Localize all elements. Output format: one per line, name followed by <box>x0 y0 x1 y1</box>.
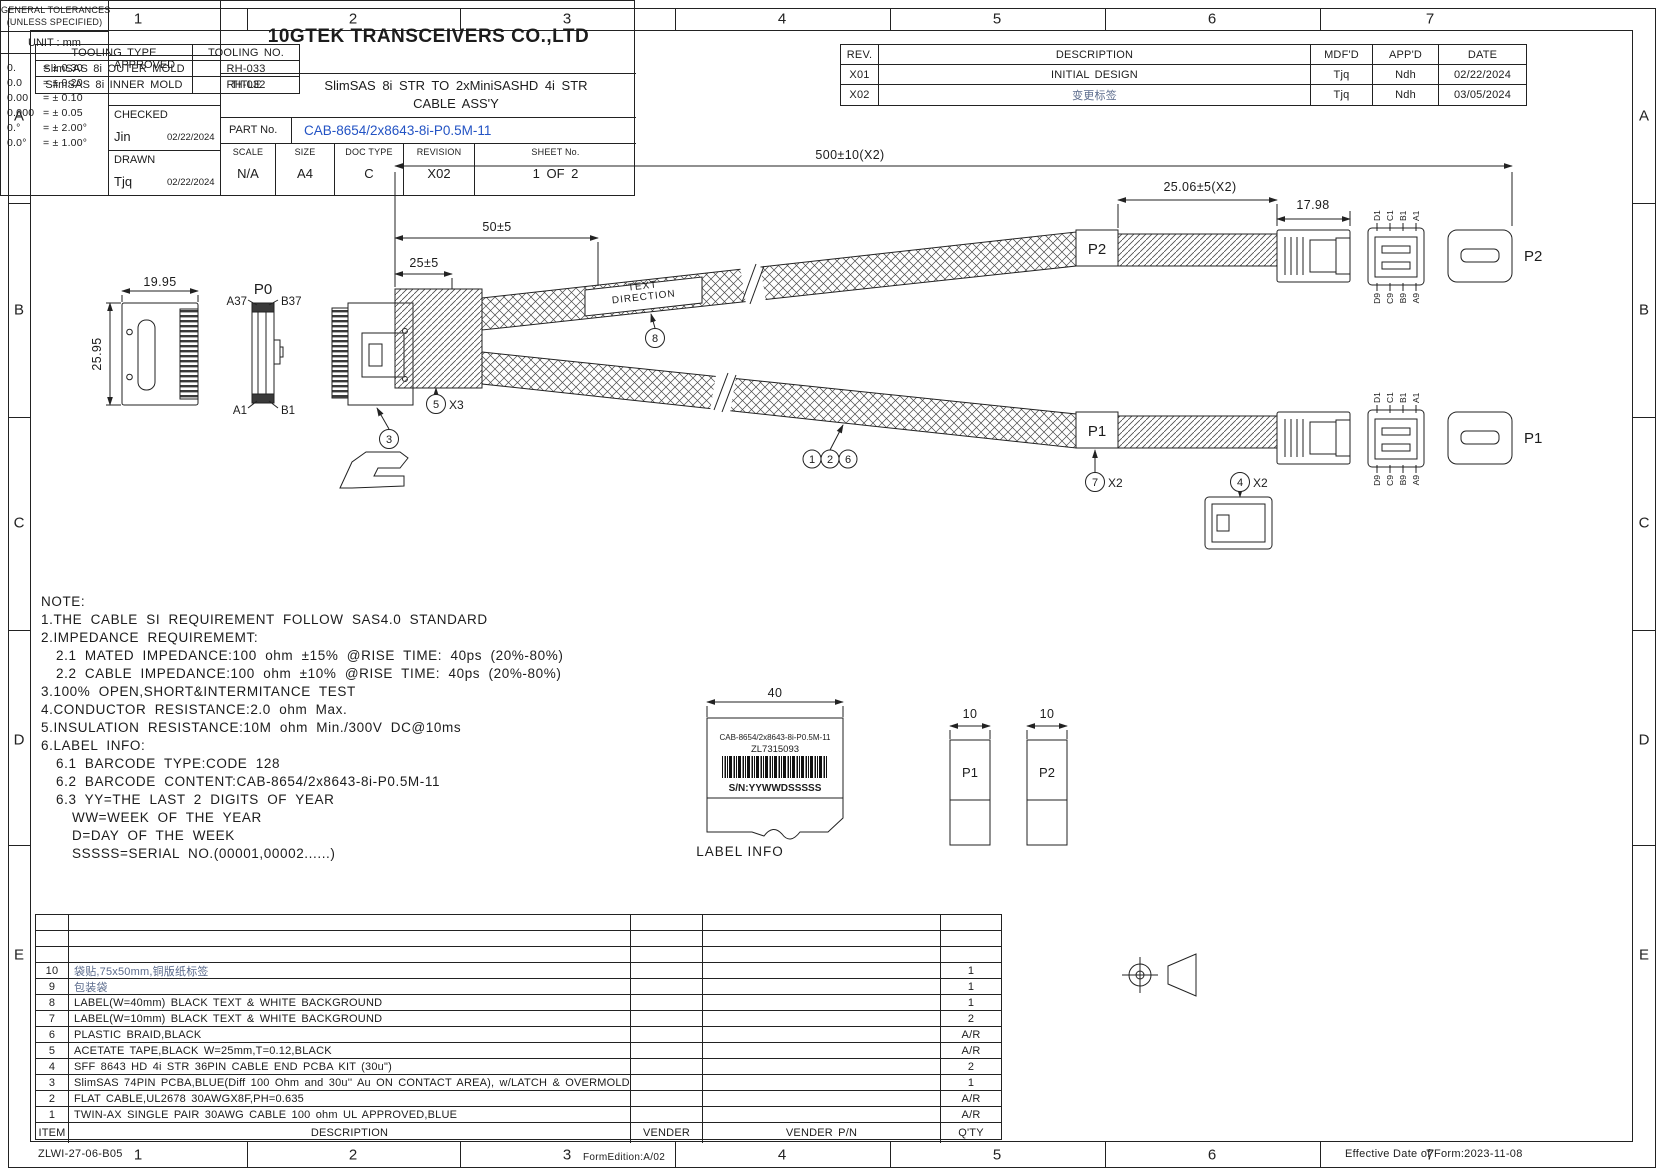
bom-item: 4 <box>36 1059 69 1075</box>
note-line: 6.1 BARCODE TYPE:CODE 128 <box>41 755 563 773</box>
bom-qty: 1 <box>941 963 1001 979</box>
note-line: D=DAY OF THE WEEK <box>41 827 563 845</box>
bom-cell-empty <box>631 947 703 963</box>
pin-label-c9: C9 <box>1385 475 1395 486</box>
notes-block: NOTE: 1.THE CABLE SI REQUIREMENT FOLLOW … <box>41 593 563 863</box>
form-number: ZLWI-27-06-B05 <box>38 1148 123 1160</box>
minisas-p2-front-view <box>1368 223 1424 291</box>
bom-vender <box>631 995 703 1011</box>
svg-text:5: 5 <box>433 399 439 411</box>
dim-50-text: 50±5 <box>482 220 511 234</box>
dim-25 <box>395 274 452 289</box>
bom-cell-empty <box>69 931 631 947</box>
p2-connector-label: P2 <box>1524 248 1542 265</box>
bom-cell-empty <box>36 915 69 931</box>
p0-label: P0 <box>254 281 272 298</box>
form-edition: FormEdition:A/02 <box>583 1152 665 1163</box>
company-name: 10GTEK TRANSCEIVERS CO.,LTD <box>268 26 589 48</box>
tolerance-row: 0.000= ± 0.05 <box>1 104 108 119</box>
note-line: 3.100% OPEN,SHORT&INTERMITANCE TEST <box>41 683 563 701</box>
dim-connector-length <box>1277 211 1350 226</box>
small-label-p2-text: P2 <box>1039 765 1055 780</box>
bom-description: LABEL(W=40mm) BLACK TEXT & WHITE BACKGRO… <box>69 995 631 1011</box>
bom-item: 5 <box>36 1043 69 1059</box>
bom-vender-pn <box>703 1011 941 1027</box>
balloon-8: 8 <box>646 314 665 348</box>
bom-description: ACETATE TAPE,BLACK W=25mm,T=0.12,BLACK <box>69 1043 631 1059</box>
sheet-value: 1 OF 2 <box>475 166 636 181</box>
pin-label-d1: D1 <box>1372 210 1382 221</box>
cable-label-p2: P2 <box>1088 241 1106 258</box>
label-partno-text: CAB-8654/2x8643-8i-P0.5M-11 <box>719 733 831 742</box>
svg-text:7: 7 <box>1092 477 1098 489</box>
pin-label-a1: A1 <box>1411 210 1421 221</box>
balloon-5-mult: X3 <box>449 398 464 412</box>
projection-symbol <box>1122 954 1196 996</box>
svg-text:3: 3 <box>386 434 392 446</box>
note-line: 6.3 YY=THE LAST 2 DIGITS OF YEAR <box>41 791 563 809</box>
general-tolerances-box: GENERAL TOLERANCES (UNLESS SPECIFIED) UN… <box>1 1 109 195</box>
label-info-caption: LABEL INFO <box>696 844 784 859</box>
tolerance-row: 0.00= ± 0.10 <box>1 89 108 104</box>
bom-header-description: DESCRIPTION <box>69 1123 631 1143</box>
part-no-value: CAB-8654/2x8643-8i-P0.5M-11 <box>292 123 491 138</box>
bom-header-vender: VENDER <box>631 1123 703 1143</box>
bom-item: 2 <box>36 1091 69 1107</box>
dim-height-text: 25.95 <box>90 337 104 370</box>
braid-lower-band <box>482 352 1076 448</box>
bom-cell-empty <box>941 931 1001 947</box>
slimsas-front-view <box>122 303 198 405</box>
bom-vender-pn <box>703 979 941 995</box>
svg-text:8: 8 <box>652 333 658 345</box>
form-effective-date: Effective Date of Form:2023-11-08 <box>1345 1148 1523 1160</box>
cable-label-p1: P1 <box>1088 423 1106 440</box>
drawing-title-line2: CABLE ASS'Y <box>281 96 631 111</box>
bom-qty: A/R <box>941 1091 1001 1107</box>
scale-value: N/A <box>221 166 275 181</box>
bom-header-qty: Q'TY <box>941 1123 1001 1143</box>
balloon-4: 4 X2 <box>1231 473 1269 498</box>
bom-description: SlimSAS 74PIN PCBA,BLUE(Diff 100 Ohm and… <box>69 1075 631 1091</box>
pin-label-d9: D9 <box>1372 475 1382 486</box>
tolerances-unit: UNIT : mm <box>1 37 108 49</box>
tolerance-row: 0.°= ± 2.00° <box>1 119 108 134</box>
pin-a37-label: A37 <box>227 296 247 308</box>
title-label: TITLE <box>231 79 261 91</box>
bom-cell-empty <box>703 931 941 947</box>
pin-label-b1: B1 <box>1398 392 1408 403</box>
bom-qty: 1 <box>941 1075 1001 1091</box>
note-line: SSSSS=SERIAL NO.(00001,00002......) <box>41 845 563 863</box>
bom-vender-pn <box>703 963 941 979</box>
note-line: 2.1 MATED IMPEDANCE:100 ohm ±15% @RISE T… <box>41 647 563 665</box>
bom-description: FLAT CABLE,UL2678 30AWGX8F,PH=0.635 <box>69 1091 631 1107</box>
svg-text:1: 1 <box>809 454 815 466</box>
bom-vender-pn <box>703 1027 941 1043</box>
bom-header-item: ITEM <box>36 1123 69 1143</box>
pin-label-b9: B9 <box>1398 293 1408 304</box>
balloon-3: 3 <box>377 408 399 449</box>
drawn-label: DRAWN <box>114 154 155 166</box>
small-label-p1-text: P1 <box>962 765 978 780</box>
bom-cell-empty <box>69 915 631 931</box>
tolerances-title: GENERAL TOLERANCES <box>1 5 108 15</box>
slimsas-p0-side-view <box>248 300 283 408</box>
bom-cell-empty <box>69 947 631 963</box>
tolerance-row: 0.0°= ± 1.00° <box>1 134 108 149</box>
svg-text:4: 4 <box>1237 477 1243 489</box>
bom-vender <box>631 1107 703 1123</box>
bom-vender-pn <box>703 1107 941 1123</box>
doc-type-value: C <box>335 166 403 181</box>
braid-upper-band <box>482 232 1076 330</box>
bom-vender <box>631 979 703 995</box>
minisas-p1-end-view <box>1448 412 1512 464</box>
bom-item: 8 <box>36 995 69 1011</box>
bom-cell-empty <box>36 947 69 963</box>
approvals-column: APPROVED CHECKED Jin 02/22/2024 DRAWN Tj… <box>109 1 221 195</box>
small-label-p1-dim: 10 <box>963 707 978 721</box>
pin-label-a1: A1 <box>1411 392 1421 403</box>
bom-cell-empty <box>703 947 941 963</box>
pin-label-c1: C1 <box>1385 392 1395 403</box>
revision-value: X02 <box>404 166 474 181</box>
bom-item: 7 <box>36 1011 69 1027</box>
tolerances-subtitle: (UNLESS SPECIFIED) <box>1 17 108 27</box>
dim-connector-height <box>106 303 121 405</box>
pin-b37-label: B37 <box>281 296 301 308</box>
dim-connector-width <box>122 291 198 302</box>
minisas-p1-side-view <box>1277 412 1350 464</box>
pin-a1-label: A1 <box>233 405 247 417</box>
bom-vender <box>631 1027 703 1043</box>
label-width-dim: 40 <box>768 686 783 700</box>
bom-qty: 2 <box>941 1059 1001 1075</box>
title-column: 10GTEK TRANSCEIVERS CO.,LTD TITLE SlimSA… <box>221 1 634 195</box>
bom-qty: A/R <box>941 1107 1001 1123</box>
balloon-4-mult: X2 <box>1253 476 1268 490</box>
svg-text:2: 2 <box>827 454 833 466</box>
minisas-p1-front-view <box>1368 405 1424 473</box>
note-line: 1.THE CABLE SI REQUIREMENT FOLLOW SAS4.0… <box>41 611 563 629</box>
bom-vender-pn <box>703 1091 941 1107</box>
bom-cell-empty <box>631 915 703 931</box>
dim-tape-text: 25.06±5(X2) <box>1163 180 1236 194</box>
bom-qty: 1 <box>941 979 1001 995</box>
bom-vender <box>631 1075 703 1091</box>
checked-by: Jin <box>114 129 131 144</box>
pin-label-d1: D1 <box>1372 392 1382 403</box>
note-line: NOTE: <box>41 593 563 611</box>
bom-vender-pn <box>703 1043 941 1059</box>
bom-description: 袋贴,75x50mm,铜版纸标签 <box>69 963 631 979</box>
tape-section-p2 <box>1118 234 1277 266</box>
sff8643-bottom-view <box>1205 497 1272 549</box>
bom-item: 1 <box>36 1107 69 1123</box>
drawn-date: 02/22/2024 <box>167 177 215 188</box>
bom-description: 包装袋 <box>69 979 631 995</box>
title-block: GENERAL TOLERANCES (UNLESS SPECIFIED) UN… <box>0 0 635 196</box>
pin-label-c9: C9 <box>1385 293 1395 304</box>
drawn-by: Tjq <box>114 174 132 189</box>
label-info-drawing <box>707 702 843 839</box>
pin-label-a9: A9 <box>1411 475 1421 486</box>
latch-detail <box>340 452 408 488</box>
dim-overall-text: 500±10(X2) <box>815 148 884 162</box>
balloon-7-mult: X2 <box>1108 476 1123 490</box>
bom-vender <box>631 963 703 979</box>
doc-type-label: DOC TYPE <box>335 147 403 157</box>
bom-cell-empty <box>703 915 941 931</box>
bom-vender <box>631 1059 703 1075</box>
overmold-hatch-block <box>395 289 482 388</box>
bom-item: 9 <box>36 979 69 995</box>
bom-vender <box>631 1011 703 1027</box>
bom-vender <box>631 1091 703 1107</box>
small-label-p2 <box>1027 726 1067 845</box>
balloon-7: 7 X2 <box>1086 450 1124 492</box>
balloon-group-1-2-6: 1 2 6 <box>803 425 857 468</box>
revision-label: REVISION <box>404 147 474 157</box>
bom-description: PLASTIC BRAID,BLACK <box>69 1027 631 1043</box>
tolerance-row: 0.0= ± 0.20 <box>1 74 108 89</box>
checked-label: CHECKED <box>114 109 168 121</box>
approved-label: APPROVED <box>114 59 175 71</box>
bom-item: 3 <box>36 1075 69 1091</box>
bom-table: 10 袋贴,75x50mm,铜版纸标签 1 9 包装袋 1 8 LABEL(W=… <box>35 914 1002 1140</box>
bom-vender-pn <box>703 1059 941 1075</box>
note-line: 5.INSULATION RESISTANCE:10M ohm Min./300… <box>41 719 563 737</box>
bom-description: SFF 8643 HD 4i STR 36PIN CABLE END PCBA … <box>69 1059 631 1075</box>
bom-cell-empty <box>941 947 1001 963</box>
tape-section-p1 <box>1118 416 1277 448</box>
tolerance-row: 0.= ± 0.30 <box>1 59 108 74</box>
note-line: 2.2 CABLE IMPEDANCE:100 ohm ±10% @RISE T… <box>41 665 563 683</box>
small-label-p1 <box>950 726 990 845</box>
size-label: SIZE <box>276 147 334 157</box>
minisas-p2-end-view <box>1448 230 1512 282</box>
bom-item: 10 <box>36 963 69 979</box>
engineering-drawing-sheet: 1 2 3 4 5 6 7 1 2 3 4 5 6 7 A B C D E A … <box>0 0 1663 1175</box>
balloon-5: 5 X3 <box>427 388 465 414</box>
size-value: A4 <box>276 166 334 181</box>
part-no-label: PART No. <box>221 124 291 136</box>
bom-cell-empty <box>631 931 703 947</box>
bom-description: LABEL(W=10mm) BLACK TEXT & WHITE BACKGRO… <box>69 1011 631 1027</box>
bom-item: 6 <box>36 1027 69 1043</box>
break-mark-upper <box>740 264 766 304</box>
drawing-title-line1: SlimSAS 8i STR TO 2xMiniSASHD 4i STR <box>281 78 631 93</box>
svg-text:6: 6 <box>845 454 851 466</box>
scale-label: SCALE <box>221 147 275 157</box>
pin-label-c1: C1 <box>1385 210 1395 221</box>
pin-label-b9: B9 <box>1398 475 1408 486</box>
bom-qty: A/R <box>941 1027 1001 1043</box>
p1-connector-label: P1 <box>1524 430 1542 447</box>
sheet-label: SHEET No. <box>475 147 636 157</box>
bom-vender-pn <box>703 1075 941 1091</box>
dim-conn-text: 17.98 <box>1296 198 1329 212</box>
label-lot-text: ZL7315093 <box>751 744 799 755</box>
pin-label-b1: B1 <box>1398 210 1408 221</box>
bom-header-vender-pn: VENDER P/N <box>703 1123 941 1143</box>
small-label-p2-dim: 10 <box>1040 707 1055 721</box>
bom-qty: A/R <box>941 1043 1001 1059</box>
note-line: 4.CONDUCTOR RESISTANCE:2.0 ohm Max. <box>41 701 563 719</box>
note-line: WW=WEEK OF THE YEAR <box>41 809 563 827</box>
dim-tape-length <box>1118 200 1277 228</box>
label-serial-text: S/N:YYWWDSSSSS <box>729 783 822 794</box>
pin-label-a9: A9 <box>1411 293 1421 304</box>
bom-qty: 1 <box>941 995 1001 1011</box>
pin-label-d9: D9 <box>1372 293 1382 304</box>
dim-width-text: 19.95 <box>143 275 176 289</box>
note-line: 6.2 BARCODE CONTENT:CAB-8654/2x8643-8i-P… <box>41 773 563 791</box>
checked-date: 02/22/2024 <box>167 132 215 143</box>
bom-description: TWIN-AX SINGLE PAIR 30AWG CABLE 100 ohm … <box>69 1107 631 1123</box>
bom-qty: 2 <box>941 1011 1001 1027</box>
bom-cell-empty <box>941 915 1001 931</box>
dim-25-text: 25±5 <box>409 256 438 270</box>
bom-vender <box>631 1043 703 1059</box>
pin-b1-label: B1 <box>281 405 295 417</box>
bom-cell-empty <box>36 931 69 947</box>
bom-vender-pn <box>703 995 941 1011</box>
note-line: 6.LABEL INFO: <box>41 737 563 755</box>
minisas-p2-side-view <box>1277 230 1350 282</box>
note-line: 2.IMPEDANCE REQUIREMEMT: <box>41 629 563 647</box>
